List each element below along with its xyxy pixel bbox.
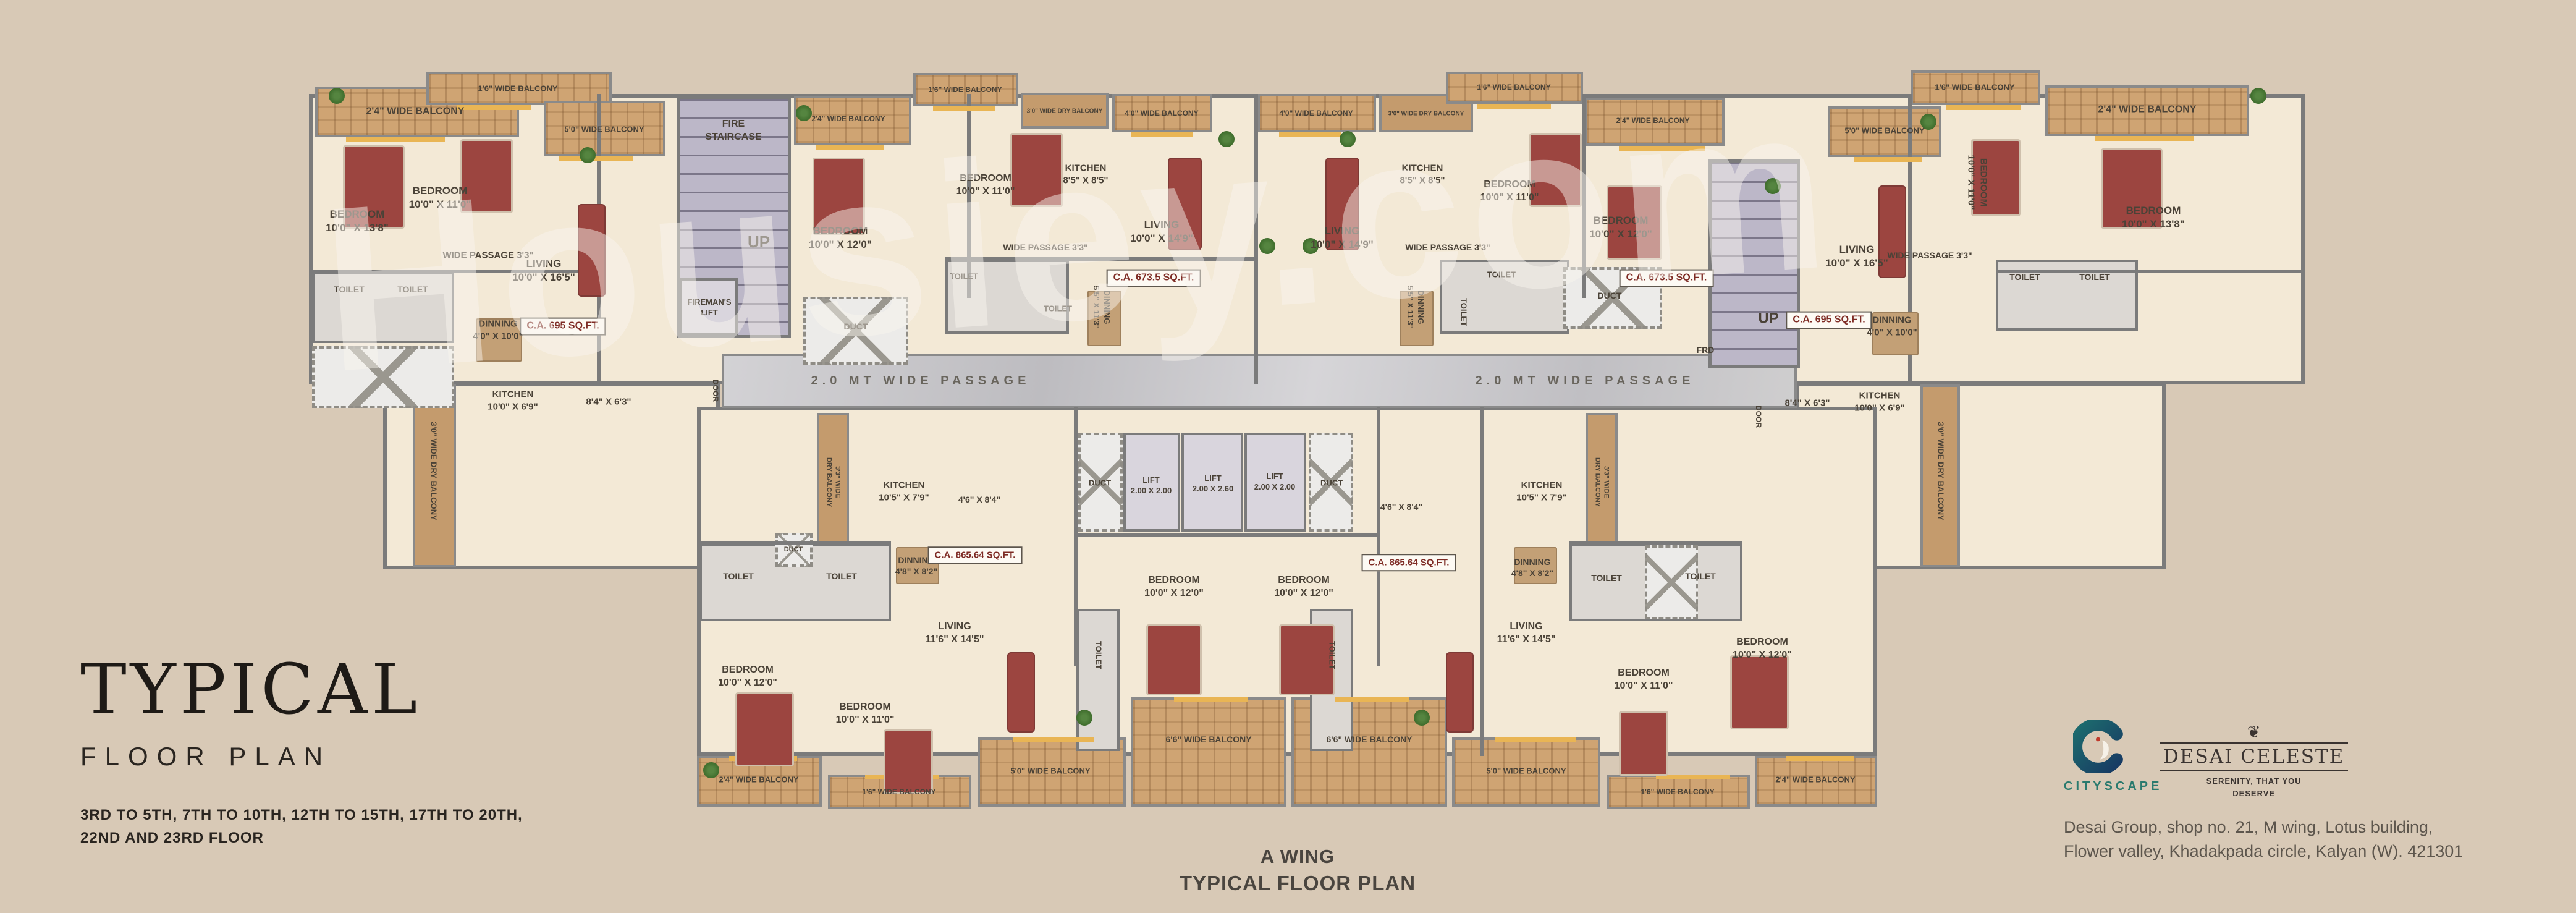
room-label: DUCT bbox=[1089, 478, 1111, 489]
room-label: TOILET bbox=[1591, 572, 1622, 584]
room-label: BEDROOM 10'0" X 11'0" bbox=[1480, 179, 1539, 205]
room-label: DOOR bbox=[710, 380, 720, 402]
room-label: LIVING 10'0" X 16'5" bbox=[1825, 243, 1888, 270]
room-label: 3'0" WIDE DRY BALCONY bbox=[1935, 422, 1946, 520]
room-label: BEDROOM 10'0" X 11'0" bbox=[1966, 155, 1990, 210]
plant bbox=[329, 88, 345, 104]
room-label: TOILET bbox=[826, 571, 857, 582]
room-label: WIDE PASSAGE 3'3" bbox=[1887, 250, 1972, 261]
room-label: DUCT bbox=[784, 545, 803, 554]
plant bbox=[2250, 88, 2266, 104]
sill bbox=[933, 106, 995, 111]
sill bbox=[1786, 756, 1854, 761]
sofa bbox=[578, 204, 606, 297]
room-label: 1'6" WIDE BALCONY bbox=[1477, 83, 1550, 93]
room-label: 6'6" WIDE BALCONY bbox=[1326, 734, 1412, 745]
room-label: DINNING 5'5" X 11'3" bbox=[1404, 286, 1425, 329]
room-label: BEDROOM 10'0" X 13'8" bbox=[326, 208, 389, 235]
sill bbox=[346, 137, 445, 142]
bed bbox=[1010, 133, 1063, 207]
room-label: BEDROOM 10'0" X 11'0" bbox=[409, 184, 471, 211]
room-label: LIVING 10'0" X 14'9" bbox=[1130, 218, 1193, 245]
sill bbox=[1619, 146, 1705, 151]
room-label: LIVING 10'0" X 16'5" bbox=[512, 257, 575, 284]
room-label: UP bbox=[748, 232, 770, 253]
cityscape-logo-icon bbox=[2073, 720, 2126, 773]
room-label: 3'0" WIDE DRY BALCONY bbox=[428, 422, 439, 520]
celeste-ornament-icon: ❦ bbox=[2160, 724, 2348, 740]
room-label: 3'0" WIDE DRY BALCONY bbox=[1027, 108, 1103, 116]
sill bbox=[457, 105, 531, 110]
room-label: KITCHEN 10'5" X 7'9" bbox=[879, 480, 929, 504]
project-tagline: SERENITY, THAT YOU DESERVE bbox=[2160, 775, 2348, 799]
wing-caption: TYPICAL FLOOR PLAN bbox=[1081, 872, 1514, 895]
sill bbox=[1477, 104, 1551, 109]
room-label: BEDROOM 10'0" X 12'0" bbox=[718, 664, 777, 690]
plant bbox=[1340, 131, 1356, 147]
sill bbox=[1495, 737, 1576, 742]
bed bbox=[884, 729, 933, 794]
room-label: 3'3" WIDE DRY BALCONY bbox=[1593, 457, 1611, 507]
room-label: KITCHEN 8'5" X 8'5" bbox=[1063, 163, 1108, 187]
room-label: TOILET bbox=[1044, 304, 1072, 315]
sill bbox=[559, 156, 633, 161]
duct bbox=[312, 346, 454, 408]
room-label: TOILET bbox=[1685, 571, 1716, 582]
room-label: TOILET bbox=[1327, 641, 1337, 669]
sill bbox=[1013, 737, 1094, 742]
plant bbox=[1259, 238, 1275, 254]
carpet-area-label: C.A. 673.5 SQ.FT. bbox=[1620, 270, 1714, 287]
room-label: BEDROOM 10'0" X 12'0" bbox=[1733, 636, 1792, 662]
room-label: 1'6" WIDE BALCONY bbox=[478, 84, 557, 95]
room-label: BEDROOM 10'0" X 11'0" bbox=[956, 172, 1015, 198]
passage-label: 2.0 MT WIDE PASSAGE bbox=[811, 373, 1031, 389]
room-label: BEDROOM 10'0" X 11'0" bbox=[1615, 667, 1673, 693]
room-label: 2'4" WIDE BALCONY bbox=[1616, 116, 1689, 126]
room-label: TOILET bbox=[2009, 271, 2040, 282]
wall bbox=[1074, 407, 1078, 666]
title-block: TYPICAL FLOOR PLAN 3RD TO 5TH, 7TH TO 10… bbox=[80, 655, 523, 849]
room-label: KITCHEN 8'5" X 8'5" bbox=[1400, 163, 1445, 187]
duct bbox=[1645, 545, 1698, 619]
sill bbox=[1854, 157, 1922, 162]
wall bbox=[1254, 94, 1258, 384]
room-label: DUCT bbox=[1598, 290, 1622, 301]
sill bbox=[1335, 697, 1409, 702]
room-label: 3'3" WIDE DRY BALCONY bbox=[824, 457, 842, 507]
room-label: BEDROOM 10'0" X 11'0" bbox=[836, 701, 895, 727]
room-label: 5'0" WIDE BALCONY bbox=[1010, 766, 1090, 777]
room-label: LIVING 11'6" X 14'5" bbox=[1497, 621, 1556, 647]
cityscape-c-icon bbox=[2073, 720, 2126, 773]
room-label: LIVING 11'6" X 14'5" bbox=[926, 621, 984, 647]
room-label: 2'4" WIDE BALCONY bbox=[2098, 104, 2197, 117]
bed bbox=[813, 158, 865, 235]
room-label: 4'0" WIDE BALCONY bbox=[1125, 109, 1198, 119]
carpet-area-label: C.A. 695 SQ.FT. bbox=[1786, 312, 1872, 329]
balcony bbox=[1131, 697, 1286, 807]
sill bbox=[816, 145, 884, 150]
wall bbox=[1582, 94, 1586, 298]
room-label: LIFT 2.00 X 2.00 bbox=[1131, 475, 1172, 496]
room-label: UP bbox=[1758, 308, 1778, 328]
room-label: LIVING 10'0" X 14'9" bbox=[1311, 224, 1374, 252]
room-label: 2'4" WIDE BALCONY bbox=[1775, 775, 1855, 786]
page-subtitle: FLOOR PLAN bbox=[80, 742, 523, 771]
bed bbox=[735, 692, 794, 766]
room-label: BEDROOM 10'0" X 12'0" bbox=[1144, 574, 1204, 600]
toilet-floor bbox=[945, 260, 1069, 334]
room-label: TOILET bbox=[1093, 641, 1104, 669]
room-label: TOILET bbox=[397, 284, 428, 295]
floor-plan-sheet: 2'4" WIDE BALCONY1'6" WIDE BALCONY5'0" W… bbox=[0, 0, 2576, 913]
room-label: FIREMAN'S LIFT bbox=[688, 297, 732, 318]
room-label: TOILET bbox=[723, 571, 754, 582]
sill bbox=[1946, 105, 2021, 110]
bed bbox=[1730, 655, 1789, 729]
room-label: DOOR bbox=[1753, 406, 1763, 428]
room-label: 1'6" WIDE BALCONY bbox=[1641, 788, 1714, 797]
room-label: 1'6" WIDE BALCONY bbox=[1935, 83, 2014, 93]
toilet-floor bbox=[312, 272, 454, 343]
sill bbox=[1279, 132, 1341, 137]
floors-applicability: 3RD TO 5TH, 7TH TO 10TH, 12TH TO 15TH, 1… bbox=[80, 804, 523, 849]
plan-caption: A WING TYPICAL FLOOR PLAN bbox=[1081, 846, 1514, 895]
room-label: TOILET bbox=[2079, 271, 2110, 282]
wing-name: A WING bbox=[1081, 846, 1514, 868]
plant bbox=[1076, 710, 1092, 726]
carpet-area-label: C.A. 865.64 SQ.FT. bbox=[1362, 554, 1456, 571]
room-label: 4'0" WIDE BALCONY bbox=[1279, 109, 1353, 119]
room-label: DUCT bbox=[844, 321, 868, 332]
room-label: 3'0" WIDE DRY BALCONY bbox=[1388, 110, 1464, 118]
room-label: KITCHEN 10'5" X 7'9" bbox=[1516, 480, 1566, 504]
room-label: DINNING 4'8" X 8'2" bbox=[1511, 556, 1553, 579]
wall bbox=[1996, 270, 2305, 273]
bed bbox=[1619, 711, 1668, 776]
toilet-floor bbox=[1076, 609, 1120, 751]
project-name: DESAI CELESTE bbox=[2160, 742, 2348, 771]
cityscape-wordmark: CITYSCAPE bbox=[2064, 779, 2135, 794]
room-label: 4'6" X 8'4" bbox=[1380, 501, 1422, 512]
stair bbox=[1708, 159, 1800, 368]
room-label: TOILET bbox=[1487, 270, 1516, 281]
developer-address: Desai Group, shop no. 21, M wing, Lotus … bbox=[2064, 815, 2463, 864]
bed bbox=[1146, 624, 1202, 695]
room-label: WIDE PASSAGE 3'3" bbox=[1003, 242, 1087, 253]
room-label: DINNING 5'5" X 11'3" bbox=[1091, 286, 1112, 329]
room-label: WIDE PASSAGE 3'3" bbox=[1405, 242, 1490, 253]
room-label: 4'6" X 8'4" bbox=[958, 494, 1000, 505]
carpet-area-label: C.A. 673.5 SQ.FT. bbox=[1107, 270, 1201, 287]
sill bbox=[1174, 697, 1248, 702]
room-label: 2'4" WIDE BALCONY bbox=[811, 114, 885, 124]
room-label: 5'0" WIDE BALCONY bbox=[564, 125, 644, 135]
room-label: LIFT 2.00 X 2.00 bbox=[1254, 472, 1296, 493]
wall bbox=[1076, 533, 1379, 537]
room-label: 5'0" WIDE BALCONY bbox=[1844, 126, 1924, 137]
room-label: DUCT bbox=[1320, 478, 1343, 489]
room-label: 2'4" WIDE BALCONY bbox=[366, 106, 465, 119]
room-label: KITCHEN 10'0" X 6'9" bbox=[488, 389, 538, 413]
room-label: DINNING 4'0" X 10'0" bbox=[473, 318, 523, 342]
plant bbox=[1218, 131, 1235, 147]
room-label: 8'4" X 6'3" bbox=[586, 396, 631, 408]
passage-label: 2.0 MT WIDE PASSAGE bbox=[1476, 373, 1695, 389]
sill bbox=[2095, 136, 2194, 141]
room-label: BEDROOM 10'0" X 12'0" bbox=[809, 224, 872, 252]
room-label: 1'6" WIDE BALCONY bbox=[862, 788, 935, 797]
room-label: BEDROOM 10'0" X 13'8" bbox=[2122, 204, 2185, 231]
room-label: 1'6" WIDE BALCONY bbox=[928, 85, 1002, 95]
room-label: FRD bbox=[1697, 344, 1715, 355]
cityscape-logo: CITYSCAPE bbox=[2064, 720, 2135, 794]
page-title: TYPICAL bbox=[80, 655, 523, 724]
wall bbox=[1480, 407, 1484, 756]
wall bbox=[1377, 407, 1380, 666]
room-label: KITCHEN 10'0" X 6'9" bbox=[1854, 390, 1904, 414]
plant bbox=[1765, 178, 1781, 194]
room-label: DINNING 4'0" X 10'0" bbox=[1867, 315, 1917, 339]
plant bbox=[796, 105, 812, 121]
room-label: TOILET bbox=[334, 284, 365, 295]
branding-block: CITYSCAPE ❦ DESAI CELESTE SERENITY, THAT… bbox=[2064, 720, 2463, 864]
wall bbox=[945, 257, 1258, 261]
sofa bbox=[1007, 652, 1035, 733]
room-label: 5'0" WIDE BALCONY bbox=[1486, 766, 1566, 777]
logos: CITYSCAPE ❦ DESAI CELESTE SERENITY, THAT… bbox=[2064, 720, 2463, 799]
plant bbox=[703, 762, 719, 778]
plant bbox=[580, 147, 596, 163]
sill bbox=[1131, 132, 1193, 137]
desai-celeste-logo: ❦ DESAI CELESTE SERENITY, THAT YOU DESER… bbox=[2160, 720, 2348, 799]
room-label: BEDROOM 10'0" X 12'0" bbox=[1274, 574, 1333, 600]
plant bbox=[1414, 710, 1430, 726]
room-label: 2'4" WIDE BALCONY bbox=[719, 775, 798, 786]
carpet-area-label: C.A. 865.64 SQ.FT. bbox=[928, 546, 1023, 564]
sofa bbox=[1446, 652, 1474, 733]
wall bbox=[1569, 541, 1742, 545]
room-label: TOILET bbox=[1458, 298, 1469, 326]
room-label: FIRE STAIRCASE bbox=[705, 118, 761, 144]
room-label: TOILET bbox=[950, 272, 978, 282]
room-label: 8'4" X 6'3" bbox=[1784, 397, 1830, 409]
room-label: 6'6" WIDE BALCONY bbox=[1165, 734, 1251, 745]
carpet-area-label: C.A. 695 SQ.FT. bbox=[520, 318, 606, 336]
room-label: LIFT 2.00 X 2.60 bbox=[1193, 473, 1234, 495]
room-label: BEDROOM 10'0" X 12'0" bbox=[1589, 214, 1652, 241]
